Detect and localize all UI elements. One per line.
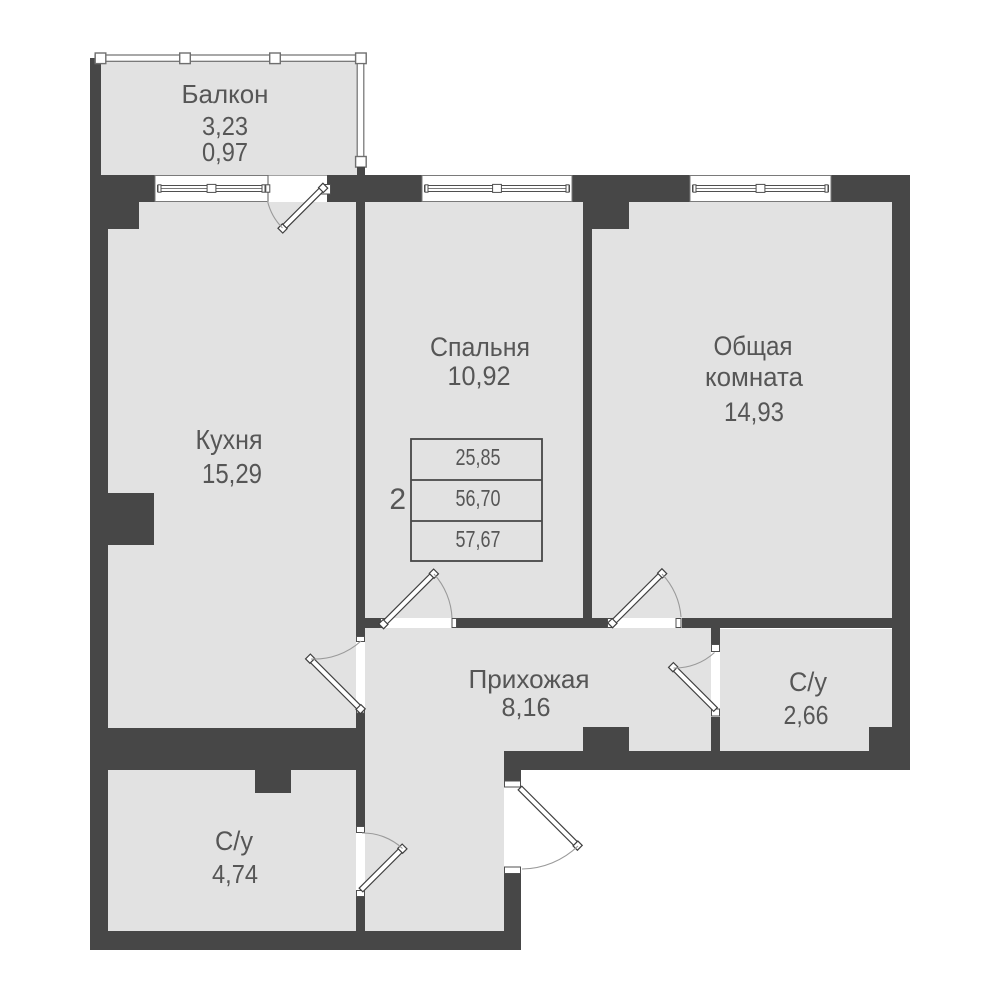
svg-text:4,74: 4,74 — [212, 859, 258, 889]
svg-text:Прихожая: Прихожая — [469, 664, 590, 694]
svg-text:Спальня: Спальня — [430, 332, 530, 362]
svg-text:15,29: 15,29 — [202, 458, 262, 489]
svg-text:комната: комната — [705, 362, 804, 392]
svg-text:56,70: 56,70 — [456, 485, 501, 511]
svg-text:С/у: С/у — [215, 826, 253, 856]
svg-text:С/у: С/у — [789, 667, 827, 697]
svg-text:57,67: 57,67 — [456, 526, 501, 552]
svg-text:2,66: 2,66 — [784, 700, 829, 730]
svg-text:10,92: 10,92 — [448, 361, 511, 391]
svg-text:14,93: 14,93 — [724, 397, 784, 427]
svg-text:Балкон: Балкон — [182, 79, 269, 109]
svg-text:Кухня: Кухня — [196, 424, 263, 455]
svg-text:2: 2 — [389, 483, 406, 516]
svg-text:Общая: Общая — [714, 331, 793, 361]
svg-text:8,16: 8,16 — [502, 692, 551, 722]
svg-text:0,97: 0,97 — [202, 137, 248, 167]
svg-text:25,85: 25,85 — [456, 444, 501, 470]
